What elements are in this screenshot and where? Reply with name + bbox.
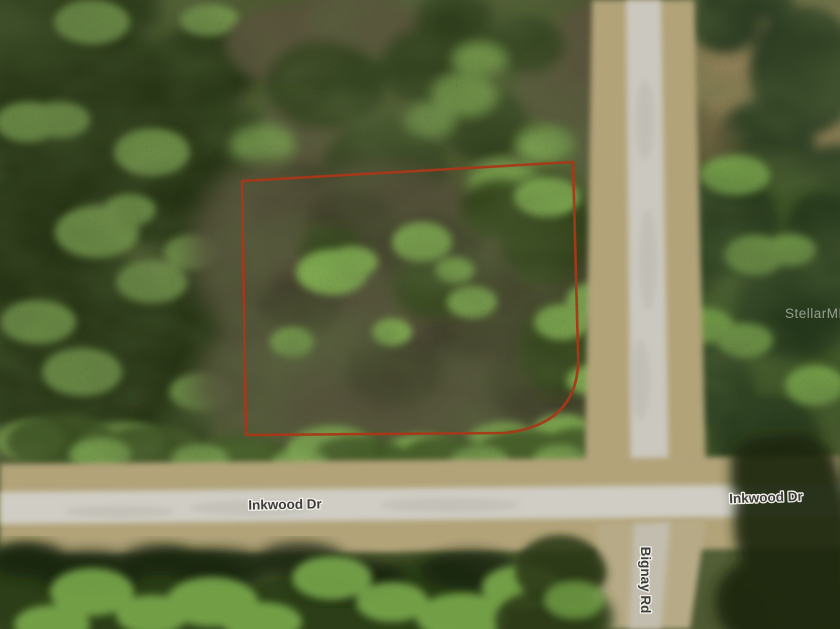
road-label-bignay-rd: Bignay Rd [638,547,653,614]
satellite-map-canvas: Inkwood Dr Inkwood Dr Bignay Rd StellarM… [0,0,840,629]
road-label-inkwood-dr-right: Inkwood Dr [729,489,804,507]
road-label-inkwood-dr-left: Inkwood Dr [248,496,322,512]
satellite-map-view: Inkwood Dr Inkwood Dr Bignay Rd StellarM… [0,0,840,629]
mls-watermark: StellarMLS [785,306,840,321]
